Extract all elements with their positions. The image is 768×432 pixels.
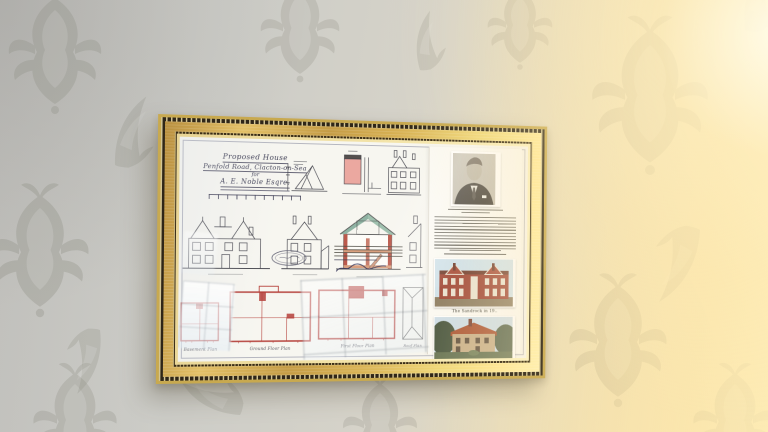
history-info-panel: The Sandrock in 19.. xyxy=(427,147,522,355)
note-text-lines xyxy=(334,246,402,259)
basement-plan-drawing xyxy=(178,300,223,346)
building-angled-view-with-trees xyxy=(434,317,512,359)
first-floor-plan-caption: First Floor Plan xyxy=(317,343,399,349)
roof-plan-drawing xyxy=(402,287,424,343)
article-paragraph-text xyxy=(434,216,516,249)
ground-floor-plan-drawing xyxy=(227,284,314,345)
article-footer-line xyxy=(444,253,506,255)
architect-stamp xyxy=(270,249,308,267)
side-elevation-drawing xyxy=(279,212,330,277)
partial-elevation-drawing xyxy=(406,212,423,273)
building-photo-side xyxy=(433,316,515,360)
portrait-caption-line-2 xyxy=(461,212,489,213)
wall-section-detail-drawing xyxy=(340,149,383,200)
portrait-of-man xyxy=(453,153,496,205)
basement-plan-caption: Basement Plan xyxy=(178,346,223,351)
front-elevation-drawing xyxy=(181,208,273,276)
picture-frame: Proposed House Penfold Road, Clacton-on-… xyxy=(156,114,547,384)
frame-inner-bead: Proposed House Penfold Road, Clacton-on-… xyxy=(173,132,533,367)
specification-note-block xyxy=(334,246,402,273)
title-line-4: A. E. Noble Esqre. xyxy=(220,177,290,188)
architect-name-line xyxy=(220,189,289,191)
small-elevation-drawing xyxy=(385,146,424,200)
building-photo-caption: The Sandrock in 19.. xyxy=(428,309,520,314)
portrait-caption-line-1 xyxy=(448,209,503,211)
first-floor-plan-drawing xyxy=(317,282,399,342)
truss-detail-drawing xyxy=(282,155,331,201)
frame-gold-moulding: Proposed House Penfold Road, Clacton-on-… xyxy=(163,121,541,377)
frame-gold-fillet: Proposed House Penfold Road, Clacton-on-… xyxy=(175,134,531,365)
signature xyxy=(334,260,390,274)
building-photo-front xyxy=(434,258,516,307)
architectural-drawing-sheet: Proposed House Penfold Road, Clacton-on-… xyxy=(178,137,528,362)
red-brick-building-front-view xyxy=(435,259,513,307)
frame-dark-bead-band: Proposed House Penfold Road, Clacton-on-… xyxy=(159,117,545,381)
article-last-line xyxy=(450,249,501,250)
ground-floor-plan-caption: Ground Floor Plan xyxy=(227,346,313,352)
roof-plan-caption: Roof Plan xyxy=(402,343,424,348)
portrait-photo xyxy=(451,151,501,207)
